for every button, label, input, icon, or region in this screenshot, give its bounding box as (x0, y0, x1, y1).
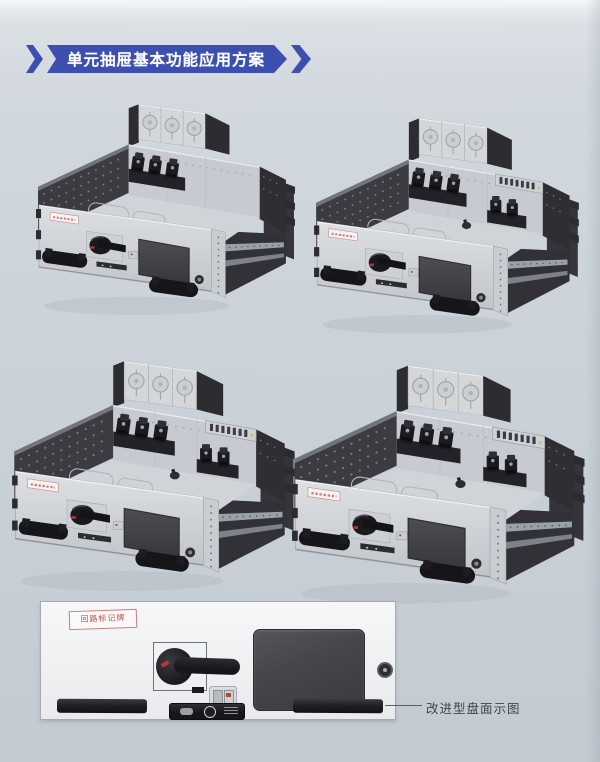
chevron-right-icon (291, 45, 311, 73)
control-bar (169, 703, 245, 720)
control-bar-slot (180, 708, 193, 715)
rotary-switch (153, 642, 207, 691)
panel-caption: 改进型盘面示图 (426, 698, 521, 717)
drawer-unit-figure-1 (36, 92, 298, 326)
control-bar-dial (204, 706, 216, 718)
section-title: 单元抽屉基本功能应用方案 (47, 45, 287, 73)
drawer-unit-figure-3 (12, 348, 298, 603)
control-bar-marks (224, 707, 238, 716)
rotary-switch-chip (192, 687, 204, 693)
catalog-page: 单元抽屉基本功能应用方案 回路标记牌 (0, 0, 600, 762)
circuit-label-plate: 回路标记牌 (69, 609, 138, 630)
panel-lock-icon (377, 662, 393, 678)
drawer-unit-figure-2 (314, 106, 582, 345)
panel-diagram: 回路标记牌 (40, 601, 396, 720)
panel-handle-left (57, 699, 147, 714)
drawer-unit-figure-4 (292, 352, 588, 616)
section-title-banner: 单元抽屉基本功能应用方案 (26, 45, 311, 73)
chevron-left-icon (26, 45, 43, 73)
page-top-strip (0, 0, 600, 10)
caption-leader-line (385, 705, 422, 706)
panel-handle-right (293, 699, 383, 714)
rotary-switch-lever (174, 657, 241, 675)
